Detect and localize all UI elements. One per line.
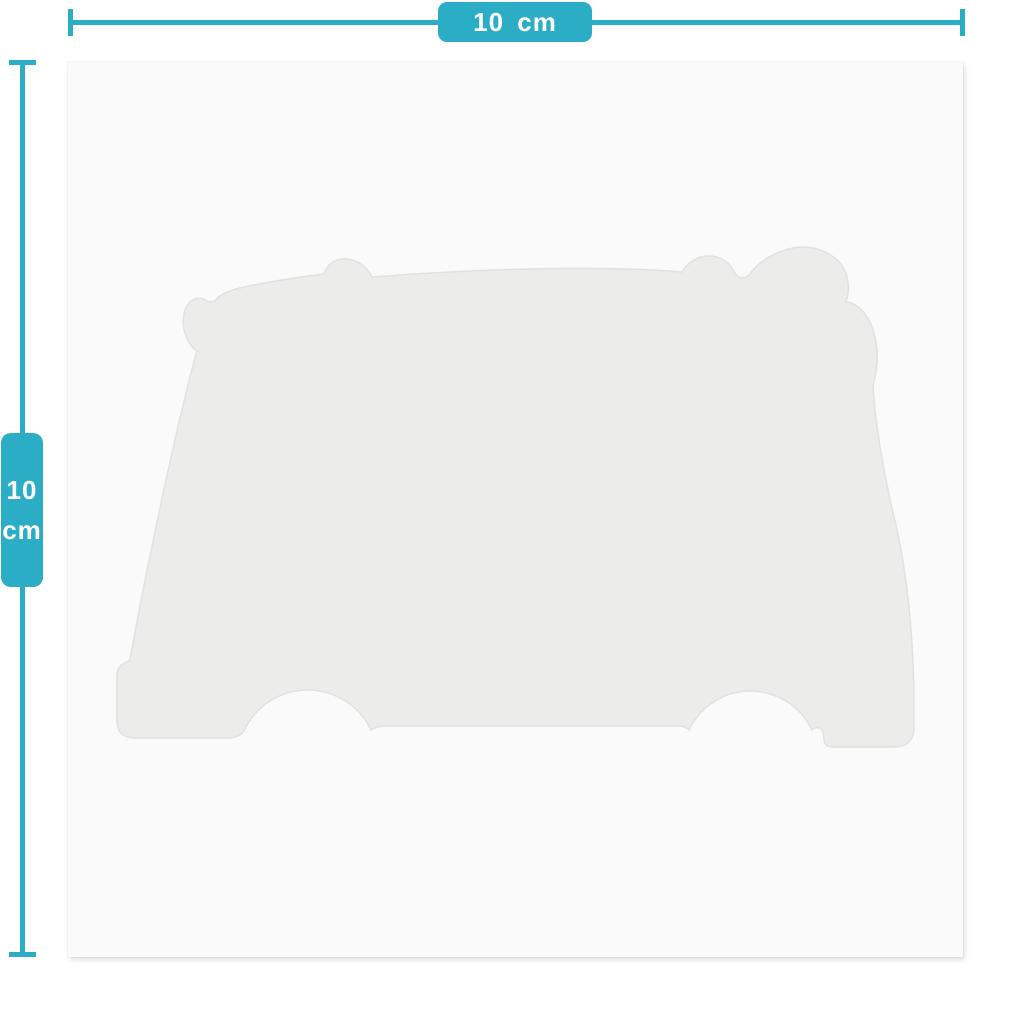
height-dimension-unit: cm — [2, 515, 42, 546]
height-dimension-label: 10 cm — [1, 433, 43, 587]
camper-van-silhouette — [68, 62, 963, 957]
sticker-sheet — [68, 62, 963, 957]
width-dimension-cap-right — [960, 9, 965, 36]
width-dimension-label: 10 cm — [438, 2, 592, 42]
width-dimension-cap-left — [68, 9, 73, 36]
width-dimension-text: 10 cm — [473, 7, 557, 38]
height-dimension-cap-bottom — [9, 952, 36, 957]
camper-van-shape — [117, 247, 914, 747]
height-dimension-cap-top — [9, 60, 36, 65]
height-dimension-value: 10 — [7, 475, 38, 506]
product-size-diagram: 10 cm 10 cm — [0, 0, 1024, 1024]
